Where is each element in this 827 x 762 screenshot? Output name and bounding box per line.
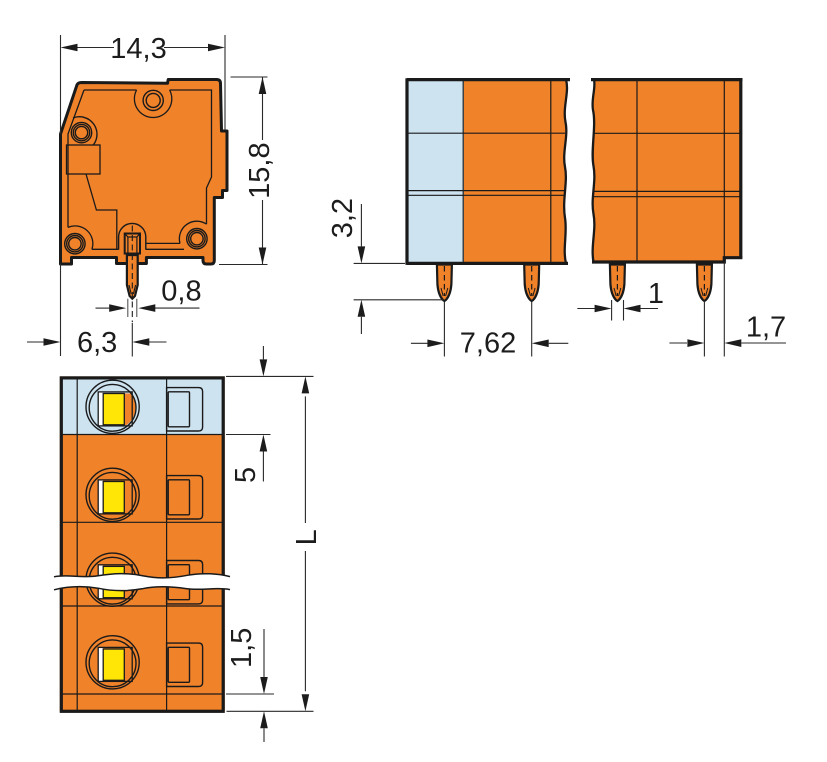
svg-text:0,8: 0,8 (161, 276, 201, 308)
svg-text:14,3: 14,3 (110, 33, 166, 65)
svg-text:6,3: 6,3 (77, 327, 117, 359)
svg-text:1: 1 (648, 278, 664, 310)
svg-text:5: 5 (230, 467, 262, 483)
svg-text:3,2: 3,2 (327, 198, 359, 238)
svg-text:7,62: 7,62 (460, 327, 516, 359)
svg-text:15,8: 15,8 (244, 142, 276, 198)
svg-text:L: L (291, 529, 323, 545)
svg-text:1,7: 1,7 (746, 312, 786, 344)
svg-text:1,5: 1,5 (226, 628, 258, 668)
